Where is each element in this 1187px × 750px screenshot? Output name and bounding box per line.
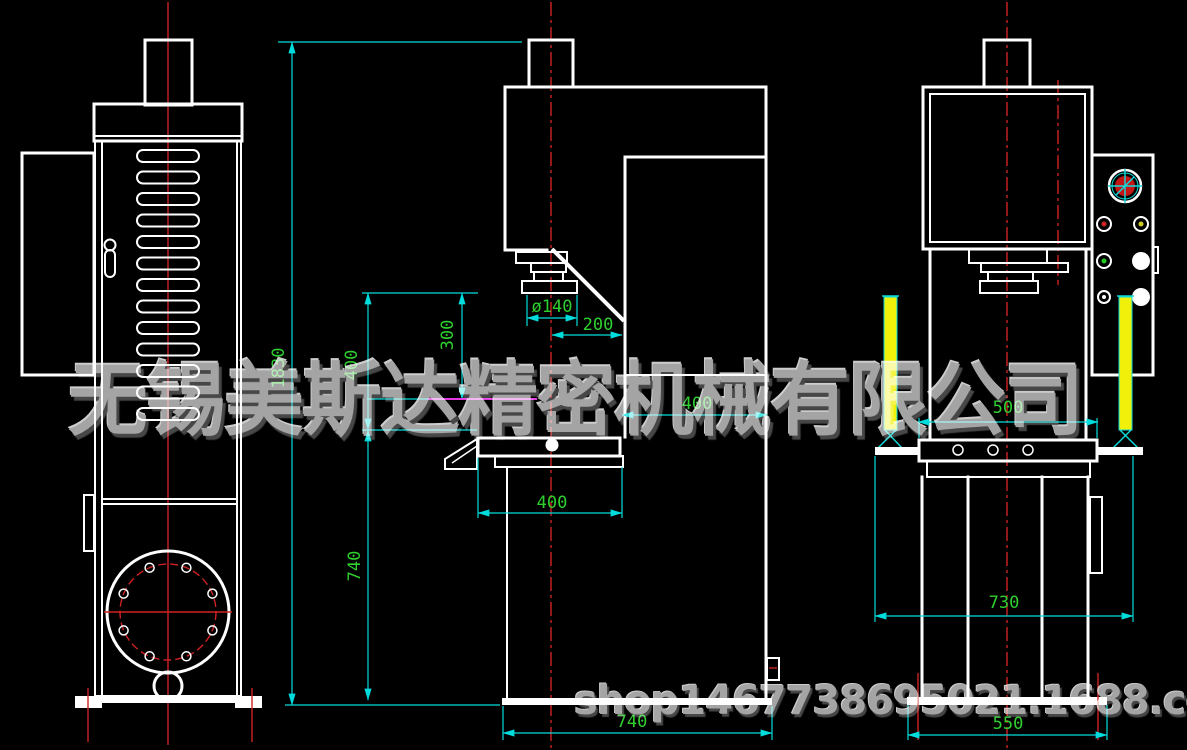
dim-table-height: 740: [345, 551, 365, 582]
button-white: [1132, 288, 1150, 306]
limit-switch: [767, 658, 779, 680]
base-plate: [75, 696, 262, 703]
ram-assembly: [516, 252, 577, 293]
door-handle: [105, 240, 116, 251]
cad-drawing-canvas: 1830 400 740 300 ø140 200 400 400 740: [0, 0, 1187, 750]
watermark-shop-url: shop1467738695021.1688.com: [574, 678, 1187, 724]
head-outline: [505, 87, 766, 250]
dim-ram-diameter: ø140: [532, 297, 573, 317]
ram-assembly: [969, 249, 1068, 293]
side-bracket: [84, 495, 94, 551]
junction-box: [1090, 497, 1102, 573]
dim-guard-span: 730: [989, 593, 1020, 613]
panel-handle: [1153, 247, 1158, 273]
watermark-company: 无锡美斯达精密机械有限公司: [68, 336, 1082, 452]
door-handle-bar: [105, 250, 115, 277]
pressure-gauge-icon: [1108, 169, 1142, 203]
dim-table-width: 400: [537, 493, 568, 513]
button-white: [1132, 252, 1150, 270]
dim-throat: 200: [583, 315, 614, 335]
